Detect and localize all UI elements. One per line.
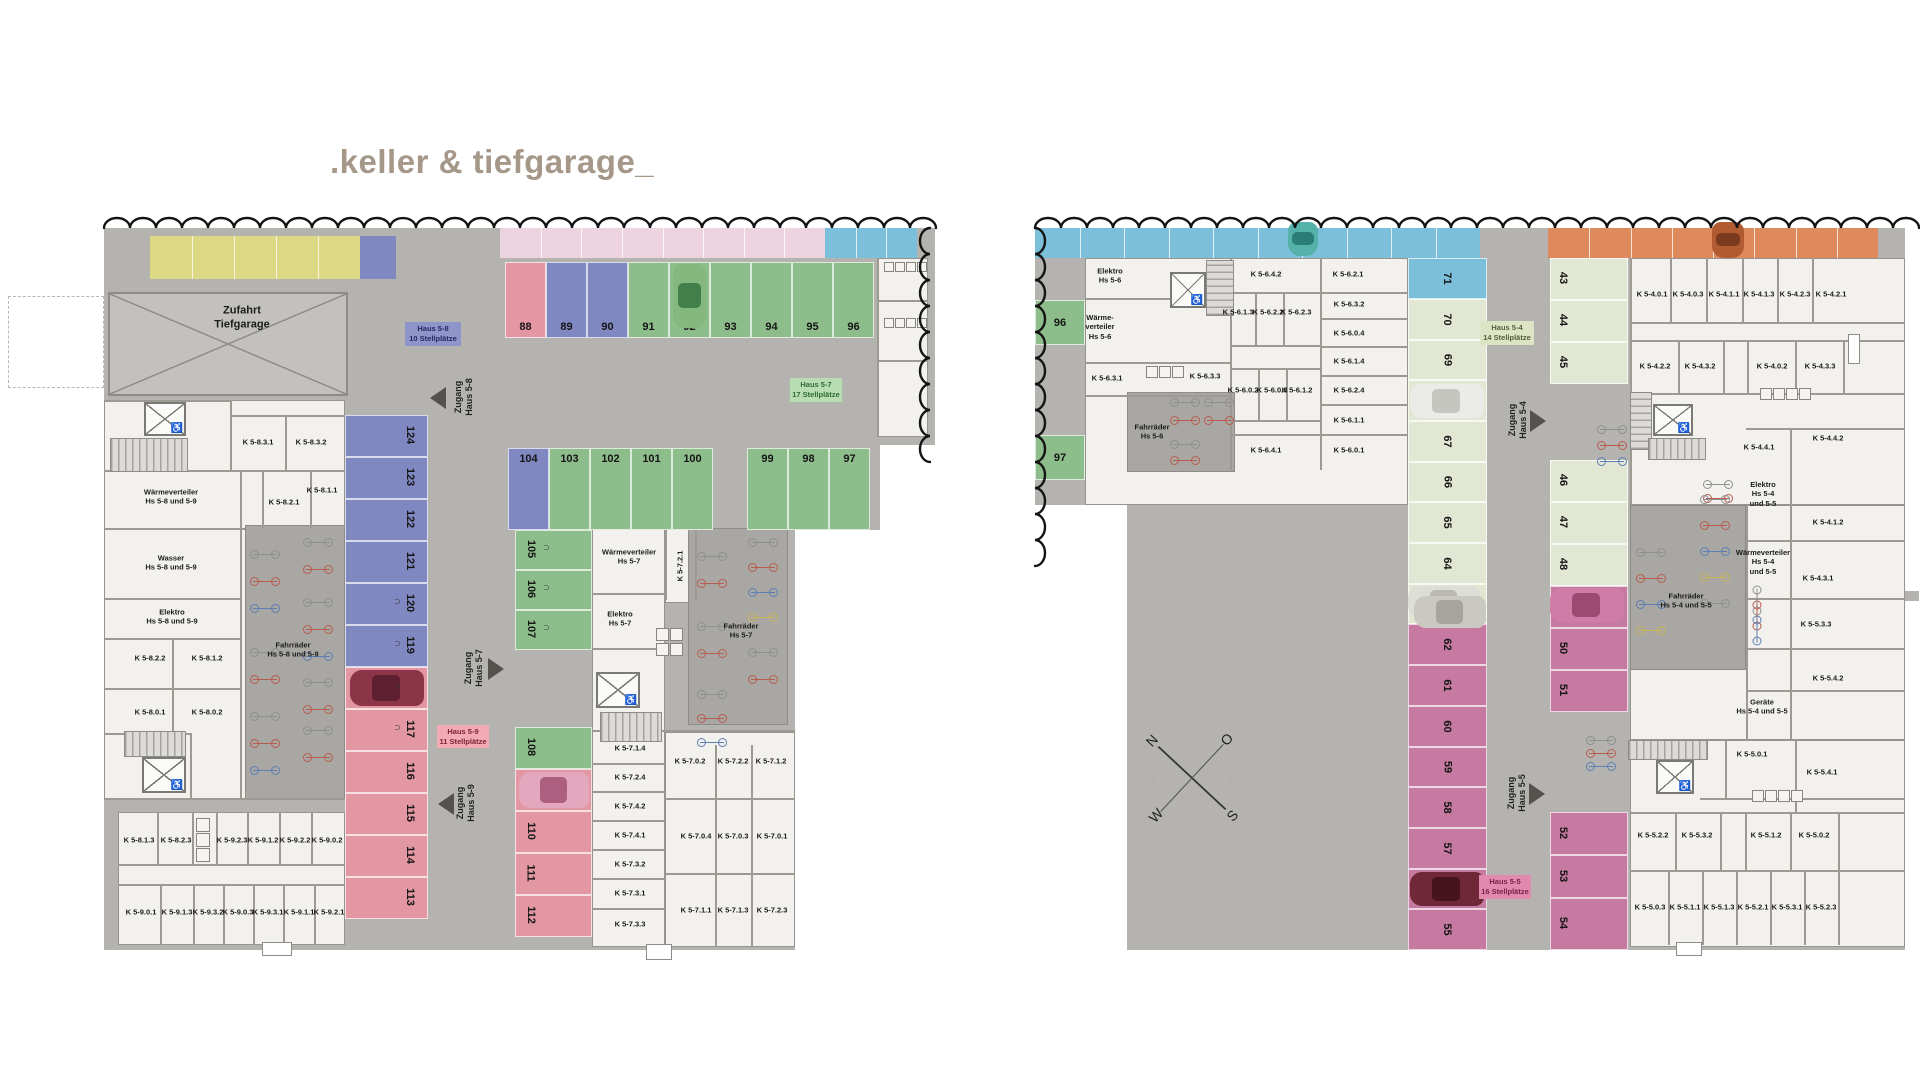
elevator-icon: ♿ [1170,272,1206,308]
wall [1230,345,1320,347]
spot-number: 46 [1557,474,1569,486]
area-label: ZufahrtTiefgarage [214,304,269,332]
area-label: ElektroHs 5-6 [1097,267,1122,286]
parking-spot: 94 [751,262,792,338]
spot-number: 54 [1557,917,1569,929]
cellar-room-label: K 5-7.1.1 [681,905,712,914]
cellar-room-block [877,258,928,437]
wall [1320,346,1408,348]
parking-spot: 89 [546,262,587,338]
cellar-room-label: K 5-4.3.1 [1803,573,1834,582]
wall [1746,648,1905,650]
cellar-room-label: K 5-5.3.2 [1682,830,1713,839]
spot-number: 98 [789,453,828,465]
wall [1746,540,1905,542]
bicycle-icon [250,712,280,721]
ev-charger-icon: ∩ [392,724,403,731]
locker-icon [917,318,927,328]
cellar-room-label: K 5-6.4.1 [1251,445,1282,454]
bicycle-icon [697,649,727,658]
cellar-room-label: K 5-9.2.2 [280,835,311,844]
bicycle-icon [250,675,280,684]
bicycle-icon [1586,762,1616,771]
locker-icons [1752,790,1804,802]
spot-number: 122 [404,510,416,528]
bicycle-icon [1170,456,1200,465]
cellar-room-label: K 5-4.1.1 [1709,289,1740,298]
spot-number: 51 [1557,684,1569,696]
locker-icon [884,262,894,272]
cellar-room-label: K 5-6.2.2 [1253,307,1284,316]
parking-spot: 120 [345,583,428,625]
wall [104,798,345,800]
wall [1745,812,1747,870]
zugang-label: ZugangHaus 5-5 [1506,774,1528,812]
wall [1723,340,1725,393]
stellplaetze-badge: Haus 5-516 Stellplätze [1479,875,1531,899]
cellar-room-label: K 5-6.3.1 [1092,373,1123,382]
stairs-icon [1628,740,1708,760]
wall [192,812,194,864]
bicycle-icon [303,726,333,735]
parking-spot: 104 [508,448,549,530]
strip-divider [1169,228,1170,258]
cellar-room-label: K 5-7.2.1 [675,551,684,582]
locker-icon [895,262,905,272]
spot-number: 89 [547,321,586,333]
cellar-room-label: K 5-7.2.2 [718,756,749,765]
parking-spot: 95 [792,262,833,338]
locker-icon [1172,366,1184,378]
bicycle-icon [303,538,333,547]
spot-number: 91 [629,321,668,333]
wall [1320,318,1408,320]
parking-spot: 115 [345,793,428,835]
spot-number: 102 [591,453,630,465]
cellar-room-label: K 5-5.4.2 [1813,673,1844,682]
cellar-room-label: K 5-9.0.1 [126,907,157,916]
wall [262,470,264,528]
bicycle-icon [1700,573,1730,582]
wall [592,648,665,650]
bicycle-icon [303,705,333,714]
area-label: WasserHs 5-8 und 5-9 [145,554,196,573]
wall [157,812,159,864]
door-stub [646,944,672,960]
zugang-arrow-icon [488,658,504,680]
spot-number: 94 [752,321,791,333]
bicycle-icon [1586,736,1616,745]
spot-number: 117 [404,720,416,738]
parking-spot: 97 [1035,435,1085,480]
cellar-room-label: K 5-8.1.3 [124,835,155,844]
wall [1320,404,1408,406]
page-title: .keller & tiefgarage_ [330,143,654,181]
locker-icon [1765,790,1777,802]
door-stub [1848,334,1860,364]
area-label: WärmeverteilerHs 5-4und 5-5 [1736,548,1790,576]
zugang-arrow-icon [438,793,454,815]
stairs-icon [600,712,662,742]
wall [877,300,928,302]
wall [1630,258,1632,505]
cellar-room-label: K 5-4.2.2 [1640,361,1671,370]
elevator-icon: ♿ [1656,760,1694,794]
bicycle-icon [697,690,727,699]
cellar-room-label: K 5-4.0.2 [1757,361,1788,370]
wall [1838,870,1840,945]
ev-charger-icon: ∩ [392,682,403,689]
strip-divider [703,228,704,258]
spot-number: 107 [525,620,537,638]
strip-divider [744,228,745,258]
cellar-room-label: K 5-6.4.2 [1251,269,1282,278]
parking-spot: 96 [1035,300,1085,345]
wheelchair-icon: ♿ [625,695,637,706]
cellar-room-label: K 5-9.3.2 [193,907,224,916]
wheelchair-icon: ♿ [1678,423,1690,434]
spot-number: 103 [550,453,589,465]
bicycle-icon [303,565,333,574]
parking-spot: 111 [515,853,592,895]
cellar-room-label: K 5-4.3.3 [1805,361,1836,370]
locker-icon [196,818,210,832]
stairs-icon [110,438,188,472]
strip-divider [1754,228,1755,258]
car-roof [1432,389,1460,414]
parking-spot: 93 [710,262,751,338]
parking-spot: 102 [590,448,631,530]
car-roof [678,283,702,307]
wall [1678,340,1680,393]
cellar-room-label: K 5-6.1.2 [1282,385,1313,394]
wall [1790,505,1792,740]
locker-icons [1146,366,1185,378]
locker-icon [1791,790,1803,802]
wall [751,745,753,947]
cellar-room-label: K 5-8.0.1 [135,707,166,716]
spot-number: 115 [404,804,416,822]
bicycle-icon [250,766,280,775]
cellar-room-label: K 5-8.0.2 [192,707,223,716]
stellplaetze-badge: Haus 5-414 Stellplätze [1480,321,1534,345]
strip-divider [784,228,785,258]
area-label: FahrräderHs 5-8 und 5-9 [267,641,318,660]
locker-icon [895,318,905,328]
locker-icon [670,628,683,641]
wall [1255,292,1257,345]
spot-number: 120 [404,594,416,612]
parking-spot: 112 [515,895,592,937]
locker-icon [906,262,916,272]
bicycle-icon [1597,457,1627,466]
wall [877,258,879,437]
cellar-room-label: K 5-7.0.2 [675,756,706,765]
spot-number: 88 [506,321,545,333]
wall [1790,812,1792,870]
locker-icon [1799,388,1811,400]
cellar-room-label: K 5-4.3.2 [1685,361,1716,370]
spot-number: 114 [404,846,416,864]
wall [1746,690,1905,692]
cellar-room-label: K 5-5.3.3 [1801,619,1832,628]
wall [1720,812,1722,870]
elevator-icon: ♿ [144,402,186,436]
wall [118,864,345,866]
area-label: FahrräderHs 5-7 [723,622,758,641]
cellar-room-label: K 5-8.1.2 [192,653,223,662]
cellar-room-label: K 5-8.2.3 [161,835,192,844]
bicycle-icon [1636,548,1666,557]
spot-number: 101 [632,453,671,465]
cellar-room-label: K 5-8.2.1 [269,497,300,506]
cellar-room-label: K 5-4.0.3 [1673,289,1704,298]
cellar-room-label: K 5-7.2.4 [615,772,646,781]
cellar-room-label: K 5-9.2.3 [217,835,248,844]
stellplaetze-badge: Haus 5-810 Stellplätze [405,322,461,346]
parking-spot: 47 [1550,502,1628,544]
spot-number: 110 [525,822,537,840]
strip-divider [1672,228,1673,258]
car-icon [1712,222,1744,258]
zugang-arrow-icon [1529,783,1545,805]
locker-icon [1760,388,1772,400]
locker-icon [196,848,210,862]
cellar-room-label: K 5-6.0.1 [1334,445,1365,454]
car-roof [1716,233,1739,247]
spot-number: 105 [525,540,537,558]
locker-icons [1760,388,1812,400]
wall [1320,258,1322,470]
locker-icons [884,318,928,328]
bicycle-icon [1636,626,1666,635]
cellar-room-label: K 5-7.4.1 [615,830,646,839]
parking-spot: 124 [345,415,428,457]
bicycle-icon [1703,480,1733,489]
wall [592,908,665,910]
wall [1320,375,1408,377]
spot-number: 43 [1557,272,1569,284]
wall [592,820,665,822]
cellar-room-label: K 5-4.1.3 [1744,289,1775,298]
parking-spot: 121 [345,541,428,583]
strip-divider [1347,228,1348,258]
spot-number: 47 [1557,516,1569,528]
parking-spot: 105 [515,530,592,570]
wall [592,849,665,851]
spot-number: 52 [1557,826,1569,838]
neighbor-parking-strip [150,236,360,279]
wall [592,791,665,793]
ramp-approach-outline [8,296,104,388]
floorplan-sheet: .keller & tiefgarage_ 888990919293949596… [0,0,1920,1080]
car-roof [1572,593,1600,618]
parking-spot: 99 [747,448,788,530]
bicycle-icon [748,563,778,572]
wall [665,873,795,875]
parking-spot: 116 [345,751,428,793]
spot-number: 119 [404,636,416,654]
cellar-room-label: K 5-5.2.3 [1806,902,1837,911]
wall [1085,362,1232,364]
locker-icon [1752,790,1764,802]
locker-icon [884,318,894,328]
wall [1630,340,1905,342]
bicycle-icon [1170,416,1200,425]
spot-number: 97 [830,453,869,465]
parking-spot: 107 [515,610,592,650]
bicycle-icon [303,678,333,687]
strip-divider [1124,228,1125,258]
parking-spot: 44 [1550,300,1628,342]
ev-charger-icon: ∩ [392,598,403,605]
bicycle-icon [697,738,727,747]
wall [1795,340,1797,393]
spot-number: 112 [525,906,537,924]
locker-icons [196,818,210,863]
wall [285,415,287,470]
wall [592,763,665,765]
neighbor-parking-strip [500,228,825,258]
parking-spot: 113 [345,877,428,919]
bicycle-icon [1586,749,1616,758]
area-label: WärmeverteilerHs 5-7 [602,548,656,567]
parking-spot: 48 [1550,544,1628,586]
wall [592,878,665,880]
wheelchair-icon: ♿ [171,780,183,791]
bicycle-icon [1170,440,1200,449]
cellar-room-label: K 5-6.0.4 [1334,328,1365,337]
locker-icon [670,643,683,656]
strip-divider [318,236,319,279]
cellar-room-label: K 5-7.0.4 [681,831,712,840]
wall [877,360,928,362]
parking-spot: 119 [345,625,428,667]
bicycle-icon [250,739,280,748]
ev-charger-icon: ∩ [541,544,552,551]
cellar-room-label: K 5-9.0.3 [223,907,254,916]
bicycle-icon [748,588,778,597]
wall [592,593,665,595]
parking-spot: 43 [1550,258,1628,300]
wall [665,798,795,800]
bicycle-icon [1597,425,1627,434]
spot-number: 95 [793,321,832,333]
locker-icon [917,262,927,272]
wall [1812,258,1814,322]
car-icon [1410,384,1484,418]
wall [1675,812,1677,870]
wall [104,598,240,600]
car-roof [1432,877,1460,902]
parking-spot: 98 [788,448,829,530]
stairs-icon [124,731,186,757]
spot-number: 45 [1557,356,1569,368]
parking-spot: 106 [515,570,592,610]
wall [1630,870,1905,872]
cellar-room-label: K 5-6.1.4 [1334,356,1365,365]
cellar-room-label: K 5-4.2.3 [1780,289,1811,298]
cellar-room-label: K 5-6.1.1 [1334,415,1365,424]
parking-spot: 97 [829,448,870,530]
bicycle-icon [1597,441,1627,450]
car-roof [540,777,567,803]
bicycle-icon [1753,616,1762,646]
wall [1843,340,1845,393]
strip-divider [1258,228,1259,258]
strip-divider [1391,228,1392,258]
wall [1746,598,1905,600]
wall [1085,395,1232,397]
cellar-room-label: K 5-7.0.3 [718,831,749,840]
door-stub [1676,942,1702,956]
wall [1630,812,1905,814]
locker-icons [656,643,684,656]
cellar-room-label: K 5-5.0.1 [1737,749,1768,758]
wall [1230,368,1320,370]
ev-charger-icon: ∩ [392,640,403,647]
wall [715,745,717,947]
strip-divider [581,228,582,258]
strip-divider [663,228,664,258]
parking-spot: 117 [345,709,428,751]
parking-spot: 103 [549,448,590,530]
door-stub [262,942,292,956]
strip-divider [1796,228,1797,258]
cellar-room-label: K 5-6.2.4 [1334,385,1365,394]
spot-number: 90 [588,321,627,333]
parking-spot: 91 [628,262,669,338]
bicycle-icon [303,598,333,607]
zugang-arrow-icon [1530,410,1546,432]
parking-spot: 45 [1550,342,1628,384]
spot-number: 97 [1036,436,1084,479]
spot-number: 123 [404,468,416,486]
spot-number: 44 [1557,314,1569,326]
parking-spot: 110 [515,811,592,853]
car-icon [519,772,589,808]
bicycle-icon [1700,495,1730,504]
cellar-room-label: K 5-4.4.2 [1813,433,1844,442]
parking-spot: 90 [587,262,628,338]
elevator-icon: ♿ [596,672,640,708]
wall [1747,340,1749,393]
ev-charger-icon: ∩ [541,624,552,631]
spot-number: 124 [404,426,416,444]
wall [1283,292,1285,345]
cellar-room-label: K 5-5.0.2 [1799,830,1830,839]
strip-divider [886,228,887,258]
spot-number: 104 [509,453,548,465]
spot-number: 106 [525,580,537,598]
bicycle-icon [1204,398,1234,407]
locker-icon [656,628,669,641]
cellar-room-label: K 5-5.3.1 [1772,902,1803,911]
torn-edge [104,218,936,228]
wheelchair-icon: ♿ [1191,295,1203,306]
parking-spot: 88 [505,262,546,338]
cellar-room-label: K 5-5.2.1 [1738,902,1769,911]
bicycle-icon [748,675,778,684]
spot-number: 116 [404,762,416,780]
strip-divider [1589,228,1590,258]
wall [1230,434,1408,436]
neighbor-parking-strip [825,228,917,258]
cellar-room-label: K 5-8.3.2 [296,437,327,446]
wall [240,470,242,798]
strip-divider [541,228,542,258]
parking-spot: 46 [1550,460,1628,502]
